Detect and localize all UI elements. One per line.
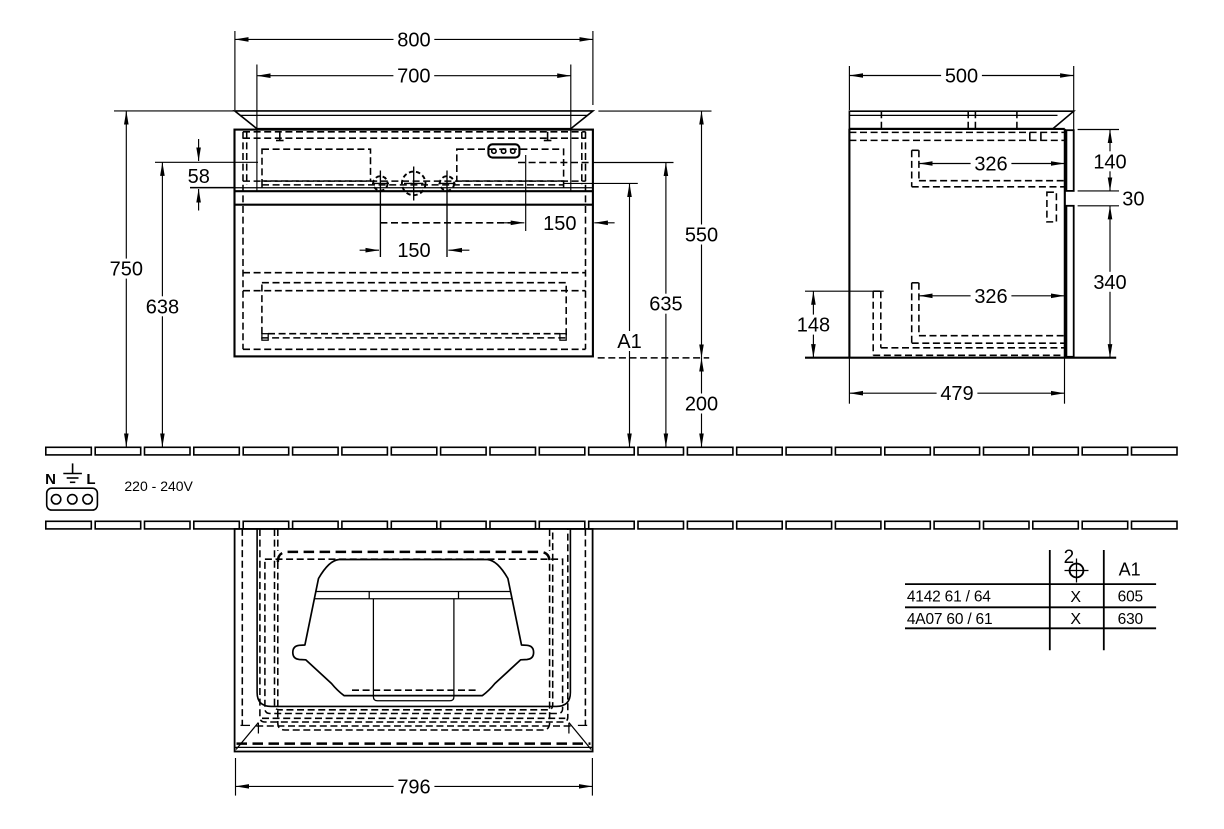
svg-text:L: L: [86, 471, 95, 488]
svg-text:30: 30: [1122, 188, 1144, 210]
svg-text:605: 605: [1118, 589, 1143, 606]
svg-text:4142 61 / 64: 4142 61 / 64: [907, 589, 991, 606]
svg-text:4A07 60 / 61: 4A07 60 / 61: [907, 611, 993, 628]
svg-text:750: 750: [110, 259, 143, 281]
svg-text:630: 630: [1118, 611, 1144, 628]
svg-text:340: 340: [1093, 272, 1126, 294]
svg-text:A1: A1: [1119, 560, 1141, 580]
svg-text:500: 500: [945, 66, 978, 88]
svg-text:58: 58: [188, 166, 210, 188]
svg-text:800: 800: [397, 29, 430, 51]
svg-text:796: 796: [397, 776, 430, 798]
svg-text:220 - 240V: 220 - 240V: [124, 478, 193, 494]
svg-text:635: 635: [649, 294, 682, 316]
svg-text:150: 150: [397, 240, 430, 262]
svg-text:150: 150: [543, 213, 576, 235]
svg-text:326: 326: [974, 154, 1007, 176]
svg-text:X: X: [1070, 611, 1081, 628]
svg-text:148: 148: [797, 315, 830, 337]
svg-text:326: 326: [974, 286, 1007, 308]
svg-text:200: 200: [685, 394, 718, 416]
svg-text:479: 479: [940, 383, 973, 405]
svg-text:X: X: [1070, 589, 1081, 606]
svg-text:700: 700: [397, 66, 430, 88]
svg-text:140: 140: [1093, 151, 1126, 173]
svg-text:N: N: [45, 471, 56, 488]
svg-text:550: 550: [685, 225, 718, 247]
svg-text:A1: A1: [617, 331, 641, 353]
svg-text:638: 638: [146, 296, 179, 318]
